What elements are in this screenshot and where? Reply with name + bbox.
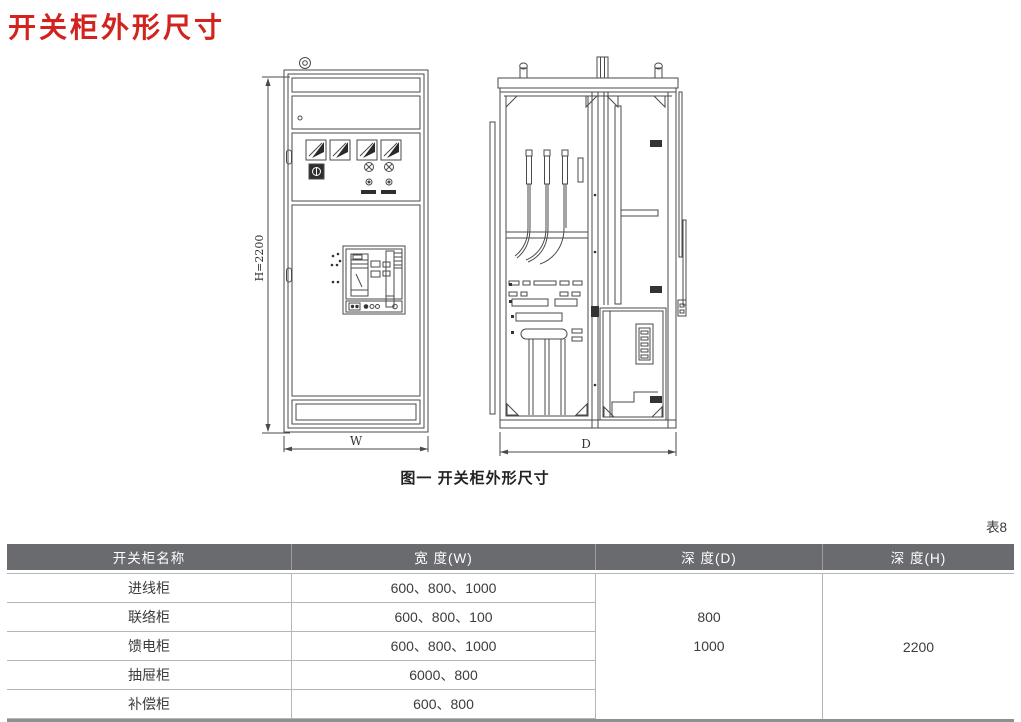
- busbar-drops: [515, 150, 583, 264]
- side-depth-dimension-label: D: [581, 437, 591, 451]
- door-screw-dots: [331, 253, 342, 284]
- column-header-depth-d: 深 度(D): [596, 544, 823, 570]
- depth-h-value: 2200: [903, 639, 934, 655]
- cell-cabinet-name: 抽屉柜: [7, 661, 292, 690]
- depth-d-value: 1000: [693, 632, 724, 661]
- cell-cabinet-name: 联络柜: [7, 603, 292, 632]
- figure-caption: 图一 开关柜外形尺寸: [235, 467, 715, 488]
- dimension-spec-table: 开关柜名称 宽 度(W) 深 度(D) 深 度(H) 进线柜 600、800、1…: [7, 544, 1014, 722]
- cell-depth-h-merged: 2200: [823, 574, 1014, 719]
- figure-drawing: H=2200: [235, 48, 715, 466]
- cell-width-value: 6000、800: [292, 661, 596, 690]
- front-height-dimension-label: H=2200: [253, 235, 266, 282]
- column-header-depth-h: 深 度(H): [823, 544, 1014, 570]
- cell-width-value: 600、800: [292, 690, 596, 719]
- indicator-lamps: [361, 163, 396, 195]
- cell-width-value: 600、800、1000: [292, 632, 596, 661]
- depth-d-value: 800: [693, 603, 724, 632]
- table-header-row: 开关柜名称 宽 度(W) 深 度(D) 深 度(H): [7, 544, 1014, 570]
- rotary-switch: [309, 164, 324, 179]
- front-width-dimension-label: W: [350, 434, 363, 448]
- cell-cabinet-name: 补偿柜: [7, 690, 292, 719]
- side-view-drawing: D: [490, 57, 686, 456]
- breaker-unit: [343, 246, 405, 314]
- cell-depth-d-merged: 800 1000: [596, 574, 823, 719]
- cables: [529, 339, 565, 415]
- cell-width-value: 600、800、100: [292, 603, 596, 632]
- cell-cabinet-name: 进线柜: [7, 574, 292, 603]
- front-view-drawing: H=2200: [253, 58, 428, 453]
- cell-cabinet-name: 馈电柜: [7, 632, 292, 661]
- page-title: 开关柜外形尺寸: [8, 6, 225, 46]
- terminal-rows: [509, 281, 582, 341]
- table-number-label: 表8: [986, 516, 1007, 536]
- column-header-width: 宽 度(W): [292, 544, 596, 570]
- table-body: 进线柜 600、800、1000 联络柜 600、800、100 馈电柜 600…: [7, 573, 1014, 722]
- meter-gauges: [306, 140, 401, 160]
- lower-right-compartment: [600, 308, 666, 420]
- column-header-cabinet-name: 开关柜名称: [7, 544, 292, 570]
- cell-width-value: 600、800、1000: [292, 574, 596, 603]
